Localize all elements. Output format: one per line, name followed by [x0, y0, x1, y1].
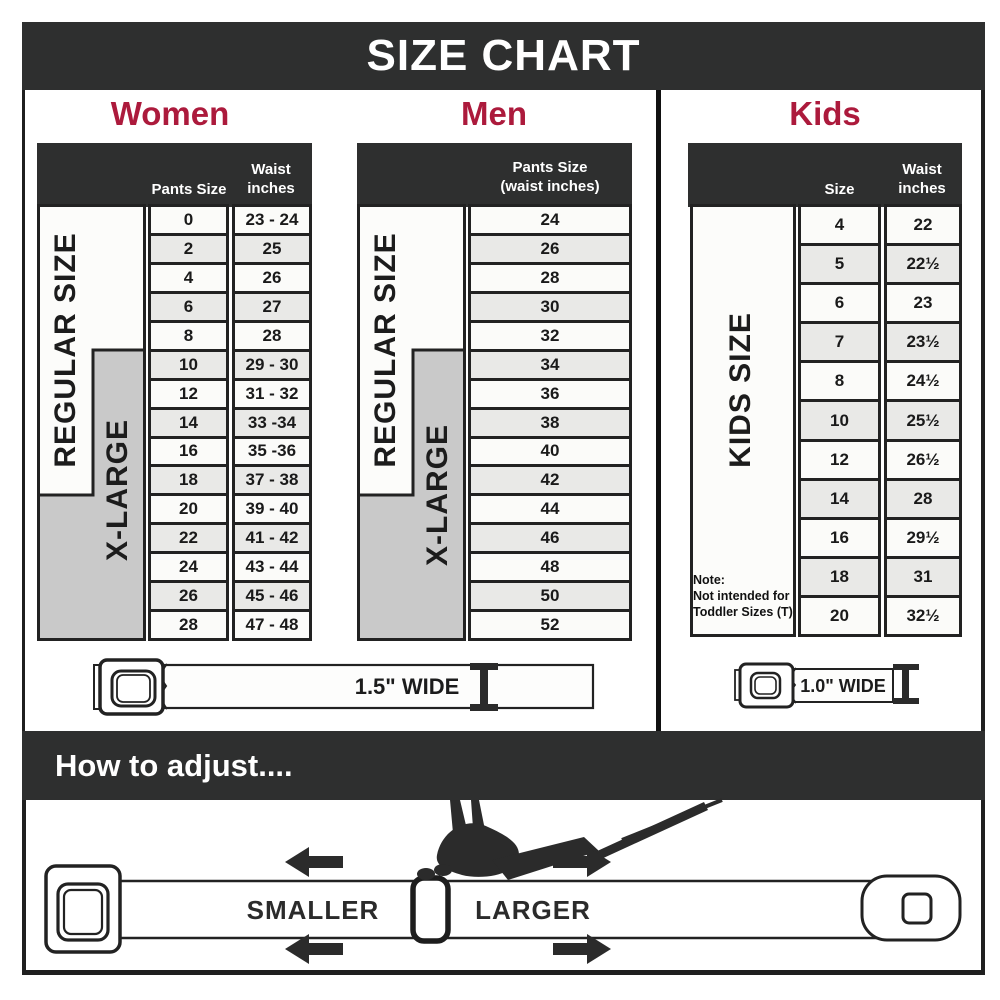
belt-adjuster [413, 878, 448, 941]
women-heading: Women [60, 95, 280, 135]
table-cell: 10 [798, 399, 881, 441]
adjust-illustration: SMALLER LARGER [22, 800, 985, 975]
kids-buckle-button-inner [755, 677, 776, 694]
table-cell: 45 - 46 [232, 580, 312, 612]
women-col2-header-line1: Waist [230, 160, 312, 179]
table-cell: 5 [798, 243, 881, 285]
table-cell: 16 [148, 436, 229, 468]
table-cell: 23 - 24 [232, 204, 312, 236]
men-col-header-line2: (waist inches) [468, 177, 632, 196]
table-cell: 44 [468, 493, 632, 525]
table-cell: 18 [798, 556, 881, 598]
kids-col2-header: Waist inches [882, 160, 962, 198]
table-cell: 18 [148, 464, 229, 496]
page-title: SIZE CHART [22, 22, 985, 90]
kids-note-line2: Not intended for [693, 588, 797, 604]
table-cell: 30 [468, 291, 632, 323]
men-size-column: 242628303234363840424446485052 [468, 204, 632, 641]
women-col2-header-line2: inches [230, 179, 312, 198]
kids-heading: Kids [715, 95, 935, 135]
kids-note: Note: Not intended for Toddler Sizes (T) [693, 572, 797, 620]
table-cell: 37 - 38 [232, 464, 312, 496]
table-cell: 23 [884, 282, 962, 324]
women-table-header: Pants Size Waist inches [37, 143, 312, 207]
table-cell: 35 -36 [232, 436, 312, 468]
women-col1-header: Pants Size [148, 180, 230, 199]
table-cell: 32½ [884, 595, 962, 637]
men-xlarge-label: X-LARGE [421, 424, 454, 566]
men-kids-divider [656, 90, 661, 731]
table-cell: 47 - 48 [232, 609, 312, 641]
table-cell: 48 [468, 551, 632, 583]
kids-waist-column: 2222½2323½24½25½26½2829½3132½ [884, 204, 962, 637]
table-cell: 22½ [884, 243, 962, 285]
table-cell: 7 [798, 321, 881, 363]
men-col-header: Pants Size (waist inches) [468, 158, 632, 196]
table-cell: 28 [148, 609, 229, 641]
smaller-arrow-top-shaft [309, 856, 343, 868]
table-cell: 39 - 40 [232, 493, 312, 525]
belt-tip-hole [903, 894, 931, 923]
table-cell: 28 [232, 320, 312, 352]
table-cell: 26 [468, 233, 632, 265]
table-cell: 29 - 30 [232, 349, 312, 381]
table-cell: 20 [148, 493, 229, 525]
table-cell: 26 [148, 580, 229, 612]
women-waist-column: 23 - 242526272829 - 3031 - 3233 -3435 -3… [232, 204, 312, 641]
table-cell: 8 [798, 360, 881, 402]
smaller-arrow-top-head [285, 847, 309, 877]
kids-note-line3: Toddler Sizes (T) [693, 604, 797, 620]
table-cell: 6 [798, 282, 881, 324]
table-cell: 20 [798, 595, 881, 637]
table-cell: 29½ [884, 517, 962, 559]
kids-col2-header-line2: inches [882, 179, 962, 198]
table-cell: 27 [232, 291, 312, 323]
larger-arrow-top-shaft [553, 856, 587, 868]
larger-label: LARGER [475, 895, 591, 925]
kids-band-label: KIDS SIZE [724, 312, 757, 468]
women-regular-label: REGULAR SIZE [49, 232, 82, 467]
women-size-bands: REGULAR SIZE X-LARGE [37, 204, 146, 641]
table-cell: 26 [232, 262, 312, 294]
adult-belt-illustration: 1.5" WIDE [88, 650, 608, 722]
table-cell: 52 [468, 609, 632, 641]
table-cell: 43 - 44 [232, 551, 312, 583]
adult-belt-width-label: 1.5" WIDE [355, 674, 460, 699]
table-cell: 31 [884, 556, 962, 598]
table-cell: 12 [148, 378, 229, 410]
larger-arrow-bottom-shaft [553, 943, 587, 955]
kids-col2-header-line1: Waist [882, 160, 962, 179]
kids-note-line1: Note: [693, 572, 797, 588]
table-cell: 25½ [884, 399, 962, 441]
men-regular-label: REGULAR SIZE [369, 232, 402, 467]
table-cell: 6 [148, 291, 229, 323]
table-cell: 26½ [884, 439, 962, 481]
table-cell: 24 [468, 204, 632, 236]
adult-buckle-button-inner [117, 675, 150, 702]
women-xlarge-label: X-LARGE [101, 419, 134, 561]
table-cell: 12 [798, 439, 881, 481]
table-cell: 40 [468, 436, 632, 468]
table-cell: 22 [884, 204, 962, 246]
table-cell: 22 [148, 522, 229, 554]
table-cell: 0 [148, 204, 229, 236]
table-cell: 24 [148, 551, 229, 583]
table-cell: 33 -34 [232, 407, 312, 439]
women-size-column: 0246810121416182022242628 [148, 204, 229, 641]
table-cell: 14 [798, 478, 881, 520]
table-cell: 28 [468, 262, 632, 294]
smaller-arrow-bottom-shaft [309, 943, 343, 955]
table-cell: 14 [148, 407, 229, 439]
kids-belt-illustration: 1.0" WIDE [725, 652, 935, 716]
table-cell: 16 [798, 517, 881, 559]
table-cell: 42 [468, 464, 632, 496]
table-cell: 50 [468, 580, 632, 612]
table-cell: 24½ [884, 360, 962, 402]
table-cell: 4 [798, 204, 881, 246]
kids-size-column: 45678101214161820 [798, 204, 881, 637]
men-heading: Men [384, 95, 604, 135]
kids-width-measure-icon [893, 664, 919, 704]
kids-belt-width-label: 1.0" WIDE [800, 676, 886, 696]
table-cell: 34 [468, 349, 632, 381]
belt-pull-line [622, 800, 722, 840]
table-cell: 23½ [884, 321, 962, 363]
men-size-bands: REGULAR SIZE X-LARGE [357, 204, 466, 641]
table-cell: 36 [468, 378, 632, 410]
table-cell: 25 [232, 233, 312, 265]
table-cell: 28 [884, 478, 962, 520]
table-cell: 41 - 42 [232, 522, 312, 554]
table-cell: 46 [468, 522, 632, 554]
table-cell: 10 [148, 349, 229, 381]
smaller-label: SMALLER [247, 895, 380, 925]
table-cell: 31 - 32 [232, 378, 312, 410]
size-chart-page: SIZE CHART Women Men Kids Pants Size Wai… [0, 0, 1000, 1000]
how-to-adjust-heading: How to adjust.... [22, 731, 985, 800]
kids-col1-header: Size [798, 180, 881, 199]
table-cell: 32 [468, 320, 632, 352]
table-cell: 38 [468, 407, 632, 439]
men-table-header: Pants Size (waist inches) [357, 143, 632, 207]
kids-table-header: Size Waist inches [688, 143, 962, 207]
table-cell: 2 [148, 233, 229, 265]
adjust-buckle-button-inner [64, 890, 102, 934]
table-cell: 8 [148, 320, 229, 352]
men-col-header-line1: Pants Size [468, 158, 632, 177]
women-col2-header: Waist inches [230, 160, 312, 198]
table-cell: 4 [148, 262, 229, 294]
